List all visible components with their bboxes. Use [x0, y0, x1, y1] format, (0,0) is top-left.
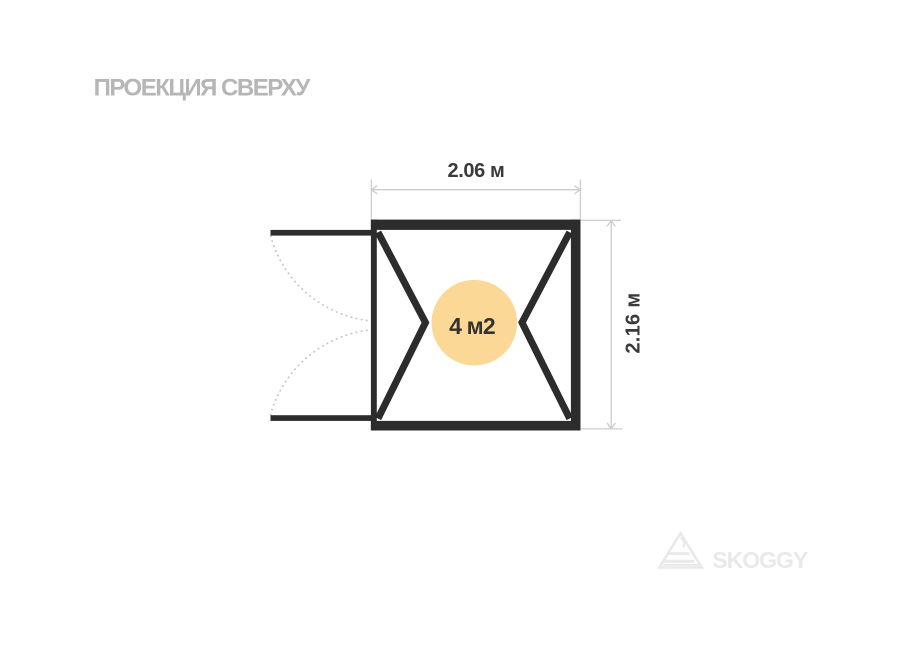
svg-text:2.06 м: 2.06 м: [448, 160, 505, 182]
svg-text:SKOGGY: SKOGGY: [712, 547, 808, 573]
svg-text:2.16 м: 2.16 м: [623, 293, 645, 354]
svg-text:4 м2: 4 м2: [449, 313, 495, 339]
svg-text:ПРОЕКЦИЯ СВЕРХУ: ПРОЕКЦИЯ СВЕРХУ: [94, 75, 312, 102]
